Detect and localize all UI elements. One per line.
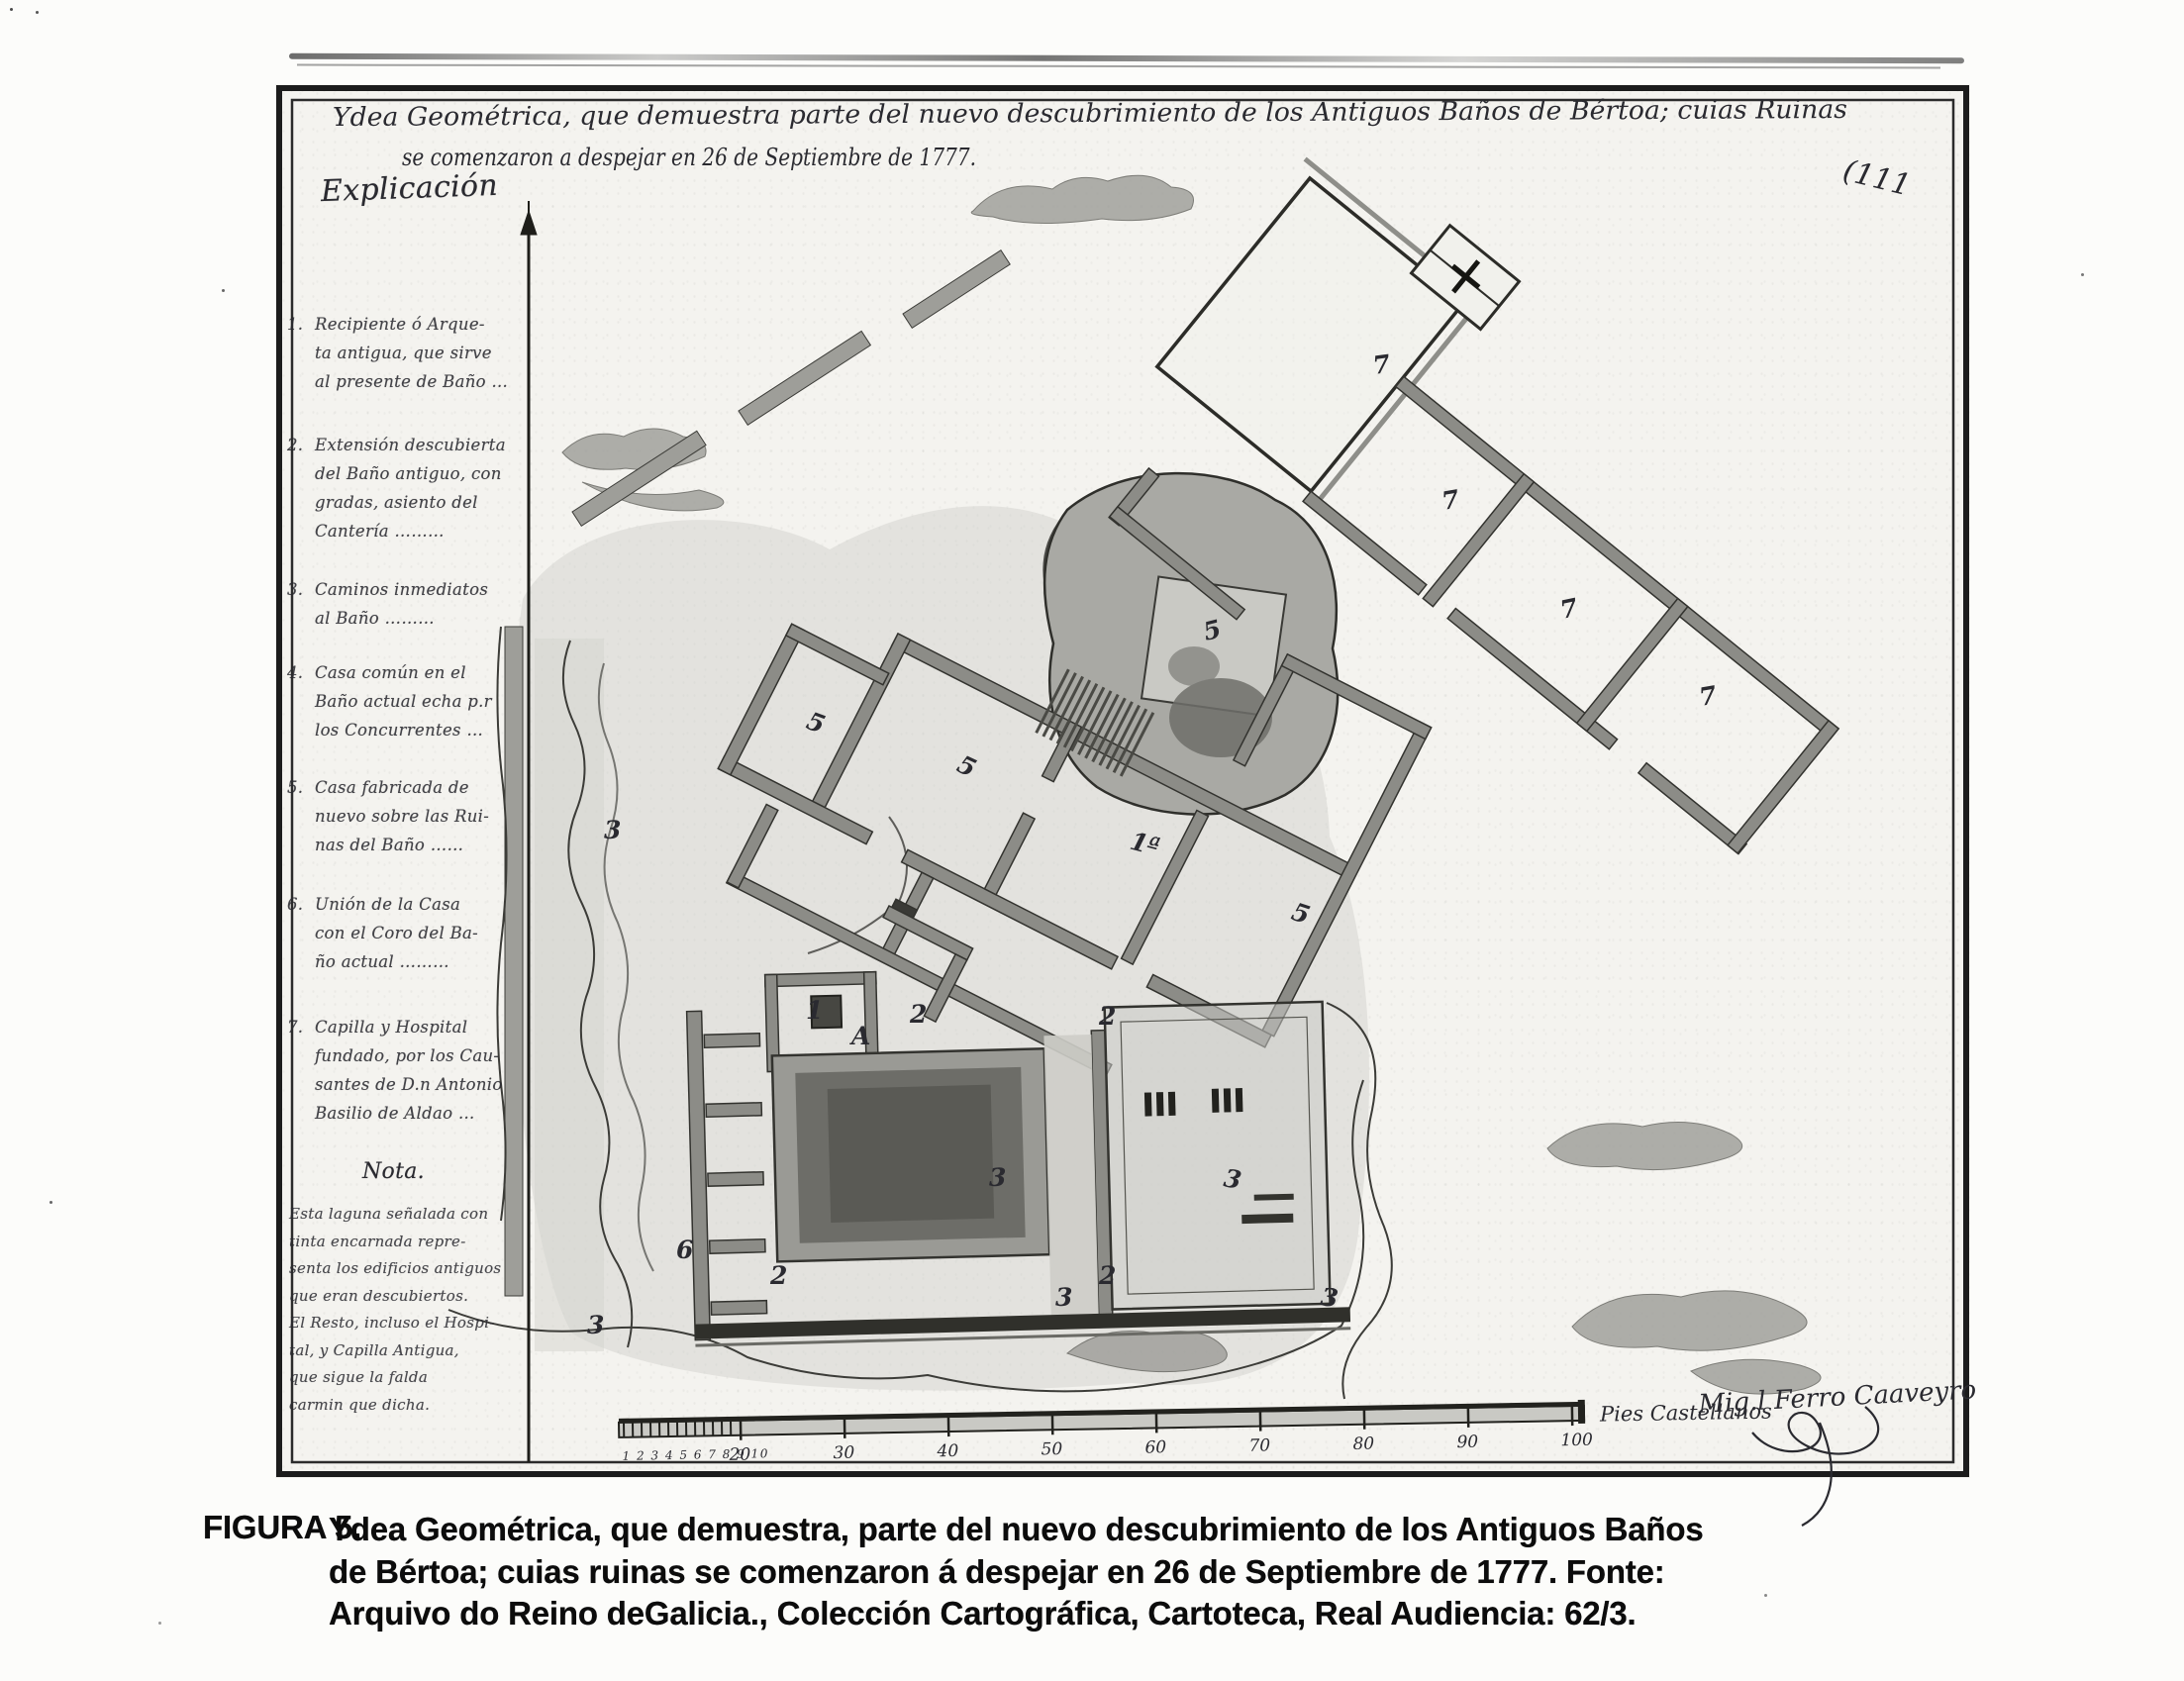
- scale-tick-label: 40: [936, 1441, 958, 1461]
- caption-line: Ydea Geométrica, que demuestra, parte de…: [329, 1509, 1992, 1551]
- plan-label: 3: [587, 1311, 604, 1339]
- legend-item: 1.Recipiente ó Arque-ta antigua, que sir…: [287, 310, 535, 396]
- legend-item-number: 2.: [287, 431, 303, 459]
- plan-label: 3: [604, 816, 621, 844]
- scan-smudge: [297, 64, 1940, 69]
- legend-item: 3.Caminos inmediatosal Baño ………: [287, 575, 535, 633]
- legend-item-number: 5.: [287, 773, 303, 802]
- scan-specks: [10, 8, 13, 11]
- legend-item-number: 4.: [287, 658, 303, 687]
- legend-nota-lines: Esta laguna señalada continta encarnada …: [289, 1201, 537, 1419]
- plan-label: A: [849, 1022, 870, 1050]
- caption-line: Arquivo do Reino deGalicia., Colección C…: [329, 1593, 1992, 1635]
- plan-label: 1: [806, 996, 823, 1025]
- scale-tick-label: 100: [1560, 1431, 1593, 1451]
- ruins-blob: [1044, 473, 1338, 814]
- legend-item: 2.Extensión descubiertadel Baño antiguo,…: [287, 431, 535, 545]
- plan-label: 2: [909, 1000, 927, 1029]
- plan-label: 7: [1439, 484, 1462, 516]
- legend-item: 4.Casa común en elBaño actual echa p.rlo…: [287, 658, 535, 744]
- legend-item-text: Caminos inmediatosal Baño ………: [287, 575, 535, 633]
- scale-tick-label: 70: [1248, 1435, 1270, 1455]
- scale-tick-label: 80: [1352, 1434, 1374, 1454]
- legend-item-text: Extensión descubiertadel Baño antiguo, c…: [287, 431, 535, 545]
- bath-pool: [772, 1048, 1049, 1261]
- legend-item-text: Casa fabricada denuevo sobre las Rui-nas…: [287, 773, 535, 859]
- nota-line: El Resto, incluso el Hospi-: [289, 1310, 537, 1337]
- plan-label: 3: [989, 1163, 1006, 1192]
- nota-line: que eran descubiertos.: [289, 1283, 537, 1311]
- scan-smudge: [289, 53, 1964, 63]
- map-panel: 2030405060708090100 1 2 3 4 5 6 7 8 9 10…: [275, 84, 1970, 1478]
- plan-label: 6: [676, 1236, 693, 1264]
- scale-tick-label: 60: [1144, 1437, 1166, 1457]
- legend-item-number: 6.: [287, 890, 303, 919]
- scanned-page: 2030405060708090100 1 2 3 4 5 6 7 8 9 10…: [0, 0, 2184, 1681]
- plan-label: 7: [1697, 680, 1720, 712]
- legend-item-number: 3.: [287, 575, 303, 604]
- legend-item: 5.Casa fabricada denuevo sobre las Rui-n…: [287, 773, 535, 859]
- scale-tick-label: 90: [1456, 1433, 1478, 1452]
- legend-item: 7.Capilla y Hospitalfundado, por los Cau…: [287, 1013, 535, 1128]
- east-room: [1105, 1002, 1331, 1310]
- caption-line: de Bértoa; cuias ruinas se comenzaron á …: [329, 1551, 1992, 1594]
- nota-line: tal, y Capilla Antigua,: [289, 1337, 537, 1365]
- legend-item: 6.Unión de la Casacon el Coro del Ba-ño …: [287, 890, 535, 976]
- plan-label: 7: [1557, 593, 1581, 625]
- plan-label: 2: [1098, 1002, 1116, 1031]
- grada-step: [704, 1034, 759, 1047]
- nota-line: carmin que dicha.: [289, 1392, 537, 1420]
- figure-caption: Ydea Geométrica, que demuestra, parte de…: [329, 1509, 1992, 1635]
- legend-item-text: Capilla y Hospitalfundado, por los Cau-s…: [287, 1013, 535, 1128]
- legend-header: Explicación: [320, 168, 498, 209]
- signature-flourish: [1752, 1407, 1878, 1526]
- legend-item-number: 7.: [287, 1013, 303, 1041]
- legend-item-text: Casa común en elBaño actual echa p.rlos …: [287, 658, 535, 744]
- plan-label: 3: [1055, 1283, 1072, 1312]
- legend-nota-header: Nota.: [362, 1159, 425, 1184]
- signature: Mig.l Ferro Caaveyro: [1697, 1375, 1977, 1526]
- nota-line: que sigue la falda: [289, 1364, 537, 1392]
- nota-line: senta los edificios antiguos: [289, 1255, 537, 1283]
- nota-line: Esta laguna señalada con: [289, 1201, 537, 1229]
- archival-mark: (111: [1839, 153, 1914, 204]
- legend-item-number: 1.: [287, 310, 303, 339]
- scale-tick-label: 50: [1041, 1439, 1062, 1459]
- plan-label: 2: [1098, 1261, 1116, 1290]
- plan-label: 2: [769, 1261, 787, 1290]
- scale-tick-label: 30: [833, 1443, 854, 1463]
- scale-bar: 2030405060708090100 1 2 3 4 5 6 7 8 9 10…: [619, 1397, 1773, 1467]
- legend-item-text: Unión de la Casacon el Coro del Ba-ño ac…: [287, 890, 535, 976]
- legend-item-text: Recipiente ó Arque-ta antigua, que sirve…: [287, 310, 535, 396]
- scale-subdivision-digits: 1 2 3 4 5 6 7 8 9 10: [622, 1446, 769, 1463]
- map-title-line2: se comenzaron a despejar en 26 de Septie…: [402, 144, 976, 171]
- nota-line: tinta encarnada repre-: [289, 1229, 537, 1256]
